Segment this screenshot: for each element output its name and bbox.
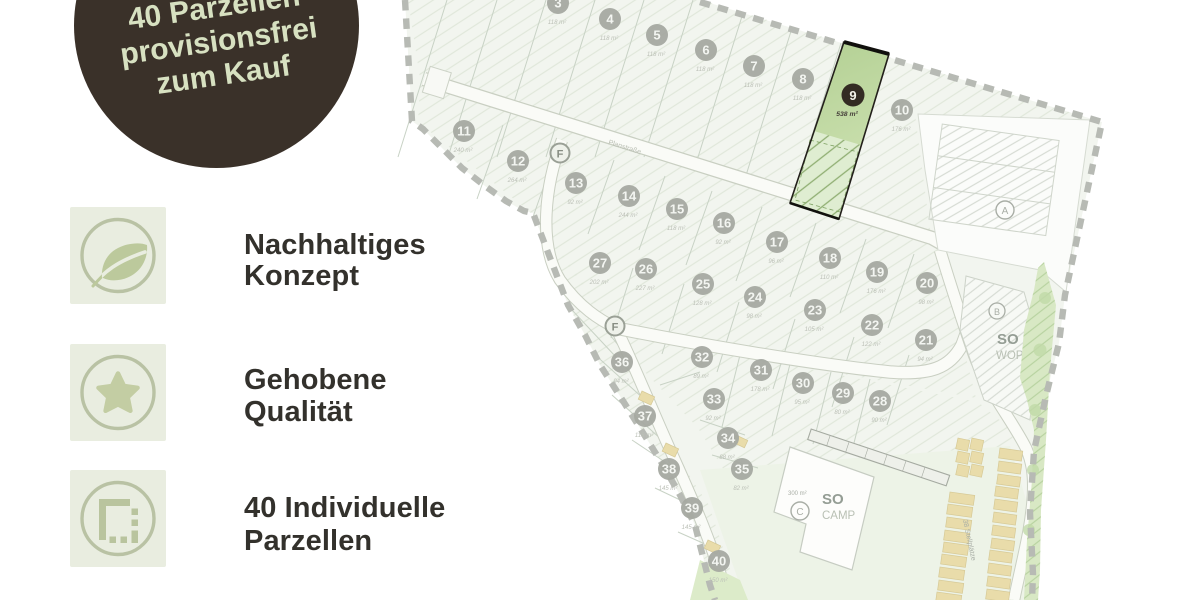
svg-text:SO: SO xyxy=(822,491,844,508)
svg-text:A: A xyxy=(1002,206,1009,217)
svg-text:118 m²: 118 m² xyxy=(635,433,654,439)
svg-text:538 m²: 538 m² xyxy=(836,111,858,118)
svg-text:110 m²: 110 m² xyxy=(820,275,839,281)
svg-text:11: 11 xyxy=(457,124,471,139)
svg-text:3: 3 xyxy=(554,0,561,11)
svg-text:9: 9 xyxy=(849,88,856,103)
svg-text:F: F xyxy=(557,149,564,161)
svg-text:31: 31 xyxy=(754,363,768,378)
svg-text:118 m²: 118 m² xyxy=(793,96,812,102)
svg-text:19: 19 xyxy=(870,265,884,280)
svg-text:244 m²: 244 m² xyxy=(618,213,639,219)
svg-text:92 m²: 92 m² xyxy=(567,200,583,206)
svg-text:105 m²: 105 m² xyxy=(805,327,825,333)
svg-text:24: 24 xyxy=(748,290,763,305)
svg-text:96 m²: 96 m² xyxy=(768,259,784,265)
svg-text:176 m²: 176 m² xyxy=(867,289,887,295)
svg-text:27: 27 xyxy=(593,256,607,271)
svg-text:90 m²: 90 m² xyxy=(871,418,887,424)
svg-text:23: 23 xyxy=(808,303,822,318)
svg-text:F: F xyxy=(612,322,619,334)
svg-text:18: 18 xyxy=(823,251,837,266)
svg-text:40: 40 xyxy=(712,554,726,569)
svg-text:300 m²: 300 m² xyxy=(788,491,807,497)
svg-text:26: 26 xyxy=(639,262,653,277)
svg-text:145 m²: 145 m² xyxy=(659,486,679,492)
svg-text:C: C xyxy=(796,507,803,518)
svg-text:118 m²: 118 m² xyxy=(647,52,666,58)
svg-text:10: 10 xyxy=(895,103,909,118)
svg-text:15: 15 xyxy=(670,202,684,217)
svg-text:95 m²: 95 m² xyxy=(794,400,810,406)
svg-text:8: 8 xyxy=(799,72,806,87)
svg-text:B: B xyxy=(994,307,1000,317)
svg-text:16: 16 xyxy=(717,216,731,231)
svg-text:4: 4 xyxy=(606,12,614,27)
svg-text:118 m²: 118 m² xyxy=(744,83,763,89)
svg-text:5: 5 xyxy=(653,28,660,43)
svg-text:12: 12 xyxy=(511,154,525,169)
svg-text:94 m²: 94 m² xyxy=(917,357,933,363)
svg-text:98 m²: 98 m² xyxy=(918,300,934,306)
svg-text:CAMP: CAMP xyxy=(822,510,856,522)
svg-text:227 m²: 227 m² xyxy=(635,286,656,292)
svg-text:22: 22 xyxy=(865,318,879,333)
svg-text:202 m²: 202 m² xyxy=(589,280,610,286)
svg-text:178 m²: 178 m² xyxy=(751,387,771,393)
svg-text:25: 25 xyxy=(696,277,710,292)
svg-text:30: 30 xyxy=(796,376,810,391)
svg-text:34: 34 xyxy=(721,431,736,446)
svg-text:122 m²: 122 m² xyxy=(862,342,882,348)
svg-text:88 m²: 88 m² xyxy=(719,455,735,461)
svg-text:14: 14 xyxy=(622,189,637,204)
svg-text:82 m²: 82 m² xyxy=(733,486,749,492)
svg-text:92 m²: 92 m² xyxy=(705,416,721,422)
svg-text:118 m²: 118 m² xyxy=(548,20,567,26)
svg-text:240 m²: 240 m² xyxy=(453,148,474,154)
svg-text:39: 39 xyxy=(685,501,699,516)
svg-text:6: 6 xyxy=(702,43,709,58)
svg-text:33: 33 xyxy=(707,392,721,407)
svg-text:118 m²: 118 m² xyxy=(696,67,715,73)
svg-text:89 m²: 89 m² xyxy=(693,374,709,380)
svg-text:WOP: WOP xyxy=(996,350,1024,362)
svg-text:36: 36 xyxy=(615,355,629,370)
svg-text:145 m²: 145 m² xyxy=(682,525,702,531)
svg-text:94 m²: 94 m² xyxy=(613,379,629,385)
svg-text:35: 35 xyxy=(735,462,749,477)
svg-text:21: 21 xyxy=(919,333,933,348)
svg-text:17: 17 xyxy=(770,235,784,250)
svg-text:92 m²: 92 m² xyxy=(715,240,731,246)
svg-text:176 m²: 176 m² xyxy=(892,127,912,133)
svg-text:128 m²: 128 m² xyxy=(693,301,713,307)
svg-text:38: 38 xyxy=(662,462,676,477)
svg-text:98 m²: 98 m² xyxy=(746,314,762,320)
svg-text:13: 13 xyxy=(569,176,583,191)
svg-text:7: 7 xyxy=(750,59,757,74)
svg-text:28: 28 xyxy=(873,394,887,409)
svg-text:29: 29 xyxy=(836,386,850,401)
svg-text:80 m²: 80 m² xyxy=(834,410,850,416)
svg-text:118 m²: 118 m² xyxy=(600,36,619,42)
svg-text:SO: SO xyxy=(997,331,1019,348)
svg-text:264 m²: 264 m² xyxy=(507,178,528,184)
svg-text:118 m²: 118 m² xyxy=(667,226,686,232)
svg-text:150 m²: 150 m² xyxy=(709,578,729,584)
svg-text:37: 37 xyxy=(638,409,652,424)
svg-text:32: 32 xyxy=(695,350,709,365)
svg-text:20: 20 xyxy=(920,276,934,291)
